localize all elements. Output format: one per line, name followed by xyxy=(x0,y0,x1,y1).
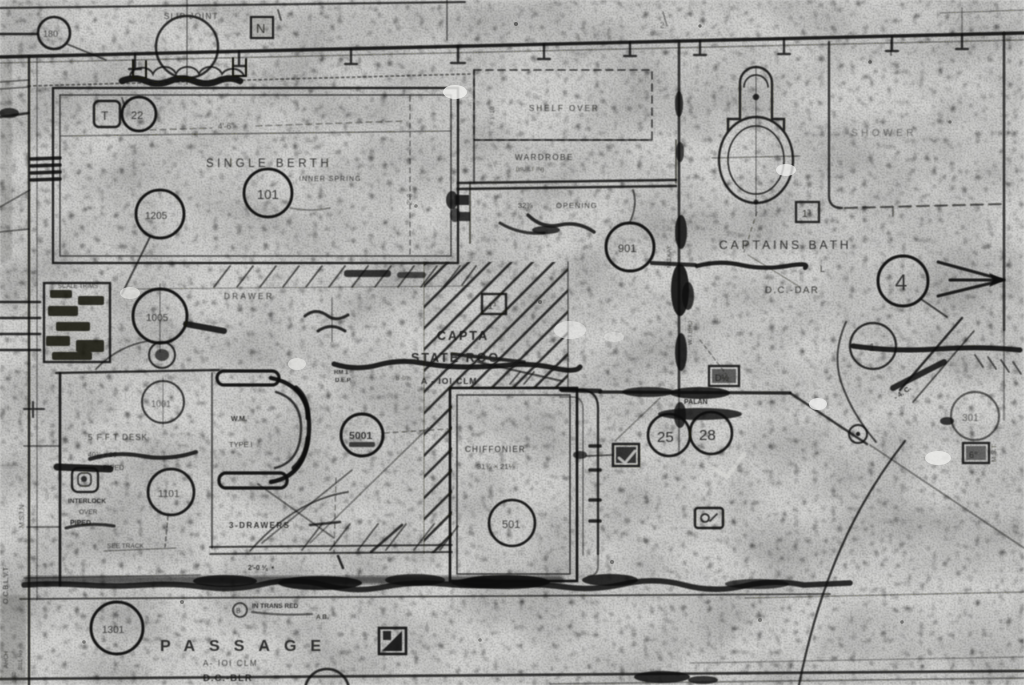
svg-text:31¾ × 21⅛: 31¾ × 21⅛ xyxy=(477,462,515,471)
svg-text:IN TRANS RED: IN TRANS RED xyxy=(252,603,299,610)
svg-text:501: 501 xyxy=(502,519,520,531)
svg-text:22: 22 xyxy=(131,110,143,122)
svg-text:6°: 6° xyxy=(969,450,978,460)
svg-text:T: T xyxy=(101,109,109,123)
svg-text:INNER SPRING: INNER SPRING xyxy=(299,176,362,183)
svg-text:SHELF OVER: SHELF OVER xyxy=(529,104,600,113)
svg-text:SEE TRACK: SEE TRACK xyxy=(107,543,144,550)
svg-text:1005: 1005 xyxy=(146,313,169,324)
svg-text:8'-0⅝: 8'-0⅝ xyxy=(396,376,412,382)
svg-text:4: 4 xyxy=(895,270,907,295)
svg-text:D.C.-DAR: D.C.-DAR xyxy=(765,285,819,296)
svg-text:1³: 1³ xyxy=(802,209,812,220)
svg-text:A- IOI CLM: A- IOI CLM xyxy=(203,659,258,668)
svg-text:2: 2 xyxy=(660,21,665,30)
svg-text:PASSAGE: PASSAGE xyxy=(160,638,335,655)
svg-text:32⅞: 32⅞ xyxy=(518,201,533,210)
svg-text:INTERLOCK: INTERLOCK xyxy=(68,498,106,505)
svg-text:5001: 5001 xyxy=(349,430,373,442)
svg-text:1301: 1301 xyxy=(102,625,125,636)
svg-text:RM 1: RM 1 xyxy=(334,370,349,376)
svg-text:180: 180 xyxy=(43,29,58,39)
svg-text:101: 101 xyxy=(257,187,279,202)
svg-text:A B.: A B. xyxy=(316,614,329,621)
svg-text:SCALE TRIMS: SCALE TRIMS xyxy=(58,284,98,290)
svg-text:OPENING: OPENING xyxy=(556,201,598,210)
svg-text:1³: 1³ xyxy=(488,301,496,311)
svg-text:(BUILT IN): (BUILT IN) xyxy=(516,167,544,173)
svg-text:WARDROBE: WARDROBE xyxy=(515,153,574,162)
svg-text:1001: 1001 xyxy=(151,399,171,409)
svg-text:1205: 1205 xyxy=(145,211,168,222)
svg-text:301: 301 xyxy=(962,413,979,424)
svg-text:1101: 1101 xyxy=(158,489,180,500)
svg-text:W.T.BHD: W.T.BHD xyxy=(688,320,694,345)
svg-text:DRAWER: DRAWER xyxy=(224,292,274,301)
svg-text:SHOWER: SHOWER xyxy=(851,128,917,139)
svg-text:W.M.: W.M. xyxy=(231,416,247,423)
svg-text:1'-10: 1'-10 xyxy=(490,106,496,120)
svg-text:N: N xyxy=(256,21,265,36)
svg-text:2'-8: 2'-8 xyxy=(407,193,414,205)
svg-text:M.S.T.: M.S.T. xyxy=(991,443,998,462)
svg-text:M.S.I.N: M.S.I.N xyxy=(19,505,26,528)
svg-text:D.E.P.: D.E.P. xyxy=(335,378,352,384)
svg-text:PALAN: PALAN xyxy=(684,399,708,406)
svg-text:5 F.F.T DESK: 5 F.F.T DESK xyxy=(88,433,148,442)
svg-text:CAPTAINS BATH: CAPTAINS BATH xyxy=(719,238,852,252)
svg-text:L: L xyxy=(820,264,825,274)
svg-text:4'-6": 4'-6" xyxy=(218,122,234,131)
svg-text:OVER: OVER xyxy=(79,509,98,516)
svg-text:SLIP JOINT: SLIP JOINT xyxy=(164,12,219,21)
svg-text:B: B xyxy=(236,608,241,615)
svg-text:2'-0 ⅛ •: 2'-0 ⅛ • xyxy=(248,565,274,572)
svg-text:CHIFFONIER: CHIFFONIER xyxy=(465,445,526,454)
svg-text:28: 28 xyxy=(699,427,716,444)
svg-text:25: 25 xyxy=(657,429,674,446)
svg-text:TYPE I: TYPE I xyxy=(229,440,253,449)
svg-text:D½: D½ xyxy=(715,373,729,383)
svg-text:901: 901 xyxy=(618,243,636,255)
